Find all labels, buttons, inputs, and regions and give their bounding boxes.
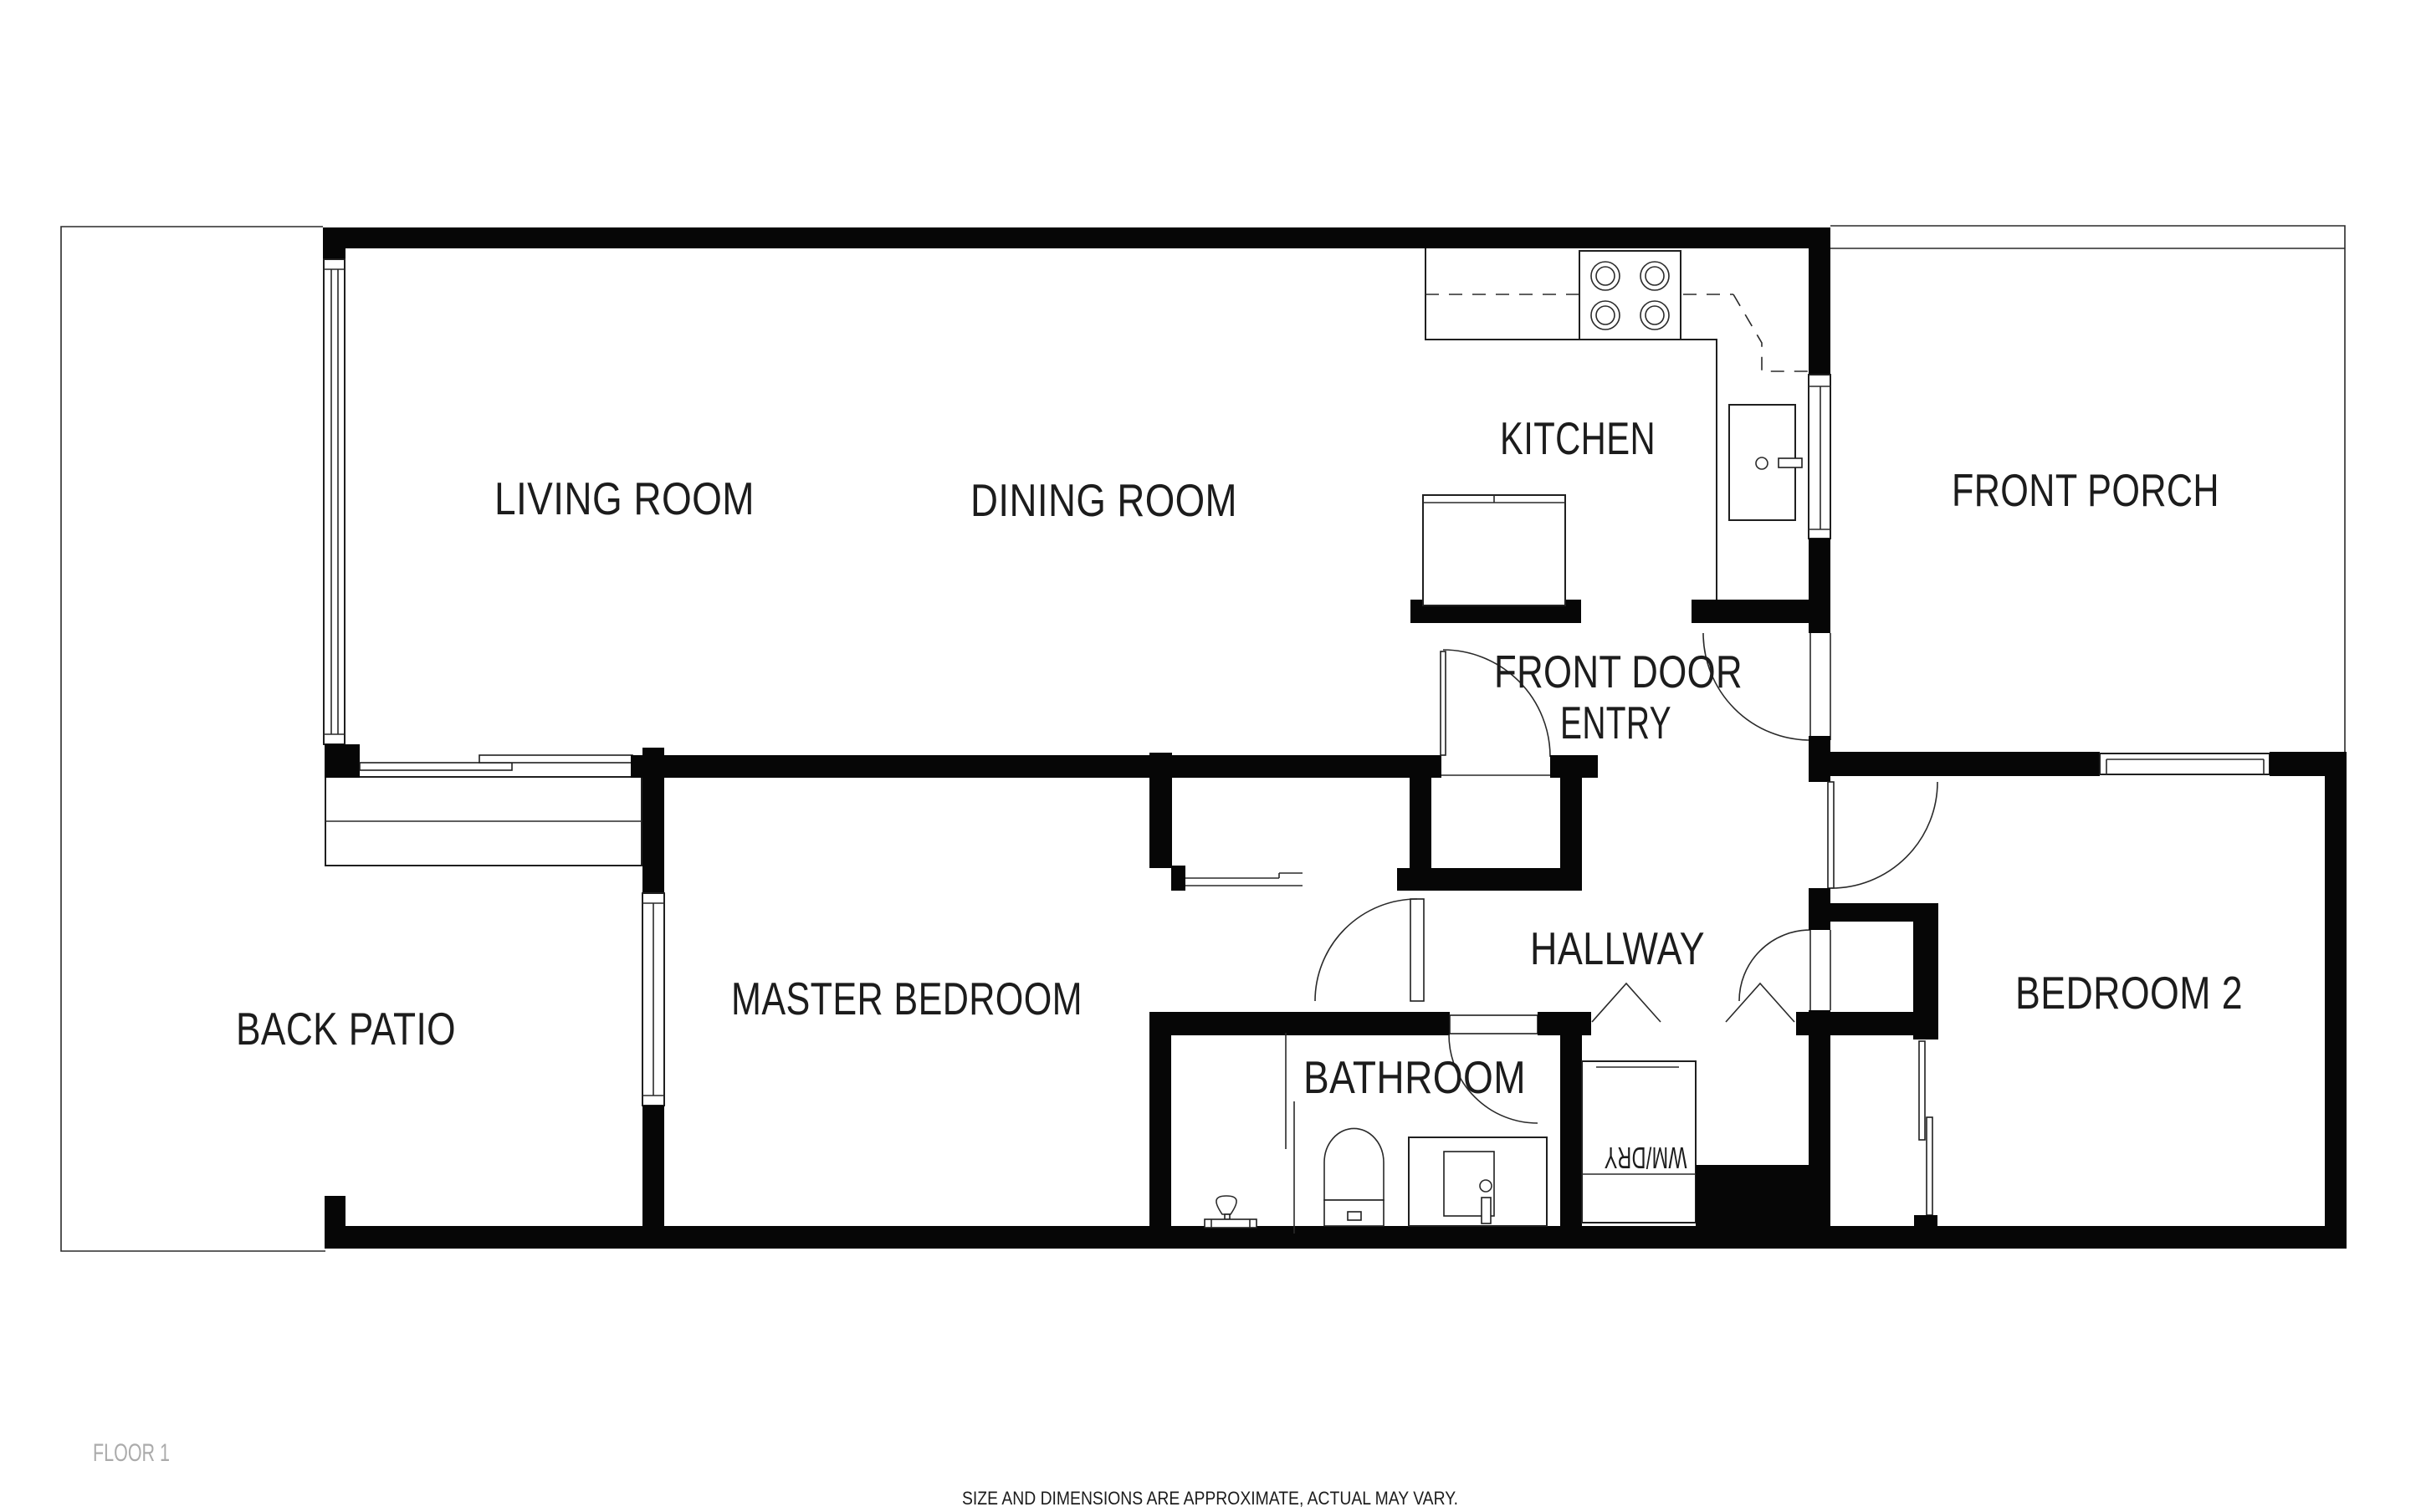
svg-text:FRONT DOOR: FRONT DOOR [1494, 646, 1743, 697]
svg-text:DINING ROOM: DINING ROOM [970, 474, 1237, 526]
svg-text:LIVING ROOM: LIVING ROOM [494, 472, 755, 524]
svg-text:KITCHEN: KITCHEN [1500, 412, 1656, 464]
svg-text:WM/DRY: WM/DRY [1605, 1141, 1687, 1175]
svg-text:FRONT PORCH: FRONT PORCH [1952, 464, 2219, 516]
svg-text:FLOOR 1: FLOOR 1 [93, 1439, 170, 1467]
svg-text:BEDROOM 2: BEDROOM 2 [2015, 967, 2243, 1019]
svg-text:BATHROOM: BATHROOM [1303, 1051, 1526, 1103]
svg-text:ENTRY: ENTRY [1560, 697, 1671, 748]
svg-text:SIZE AND DIMENSIONS ARE APPROX: SIZE AND DIMENSIONS ARE APPROXIMATE, ACT… [962, 1488, 1458, 1509]
svg-text:MASTER BEDROOM: MASTER BEDROOM [731, 973, 1083, 1024]
svg-text:HALLWAY: HALLWAY [1530, 922, 1705, 974]
svg-text:BACK PATIO: BACK PATIO [236, 1003, 456, 1055]
